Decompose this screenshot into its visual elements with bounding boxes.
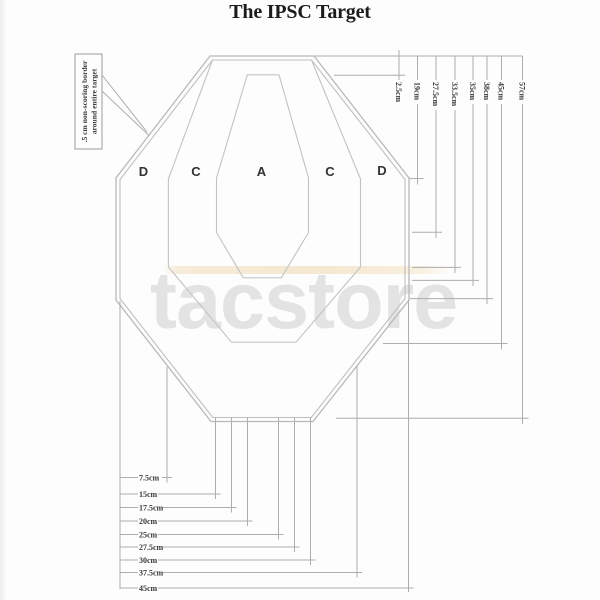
svg-text:25cm: 25cm: [139, 530, 158, 539]
svg-text:D: D: [139, 164, 148, 179]
svg-text:37.5cm: 37.5cm: [139, 568, 164, 577]
svg-text:38cm: 38cm: [482, 82, 491, 101]
svg-text:A: A: [257, 164, 267, 179]
svg-text:57cm: 57cm: [518, 82, 527, 101]
svg-text:20cm: 20cm: [139, 517, 158, 526]
svg-text:C: C: [191, 164, 201, 179]
svg-text:D: D: [377, 163, 386, 178]
svg-text:around entire target: around entire target: [90, 68, 99, 134]
svg-text:19cm: 19cm: [413, 82, 422, 101]
svg-text:27.5cm: 27.5cm: [139, 543, 164, 552]
svg-text:.5 cm non-scoring border: .5 cm non-scoring border: [80, 60, 89, 142]
svg-text:35cm: 35cm: [468, 82, 477, 101]
svg-text:45cm: 45cm: [497, 82, 506, 101]
svg-text:2.5cm: 2.5cm: [394, 82, 403, 103]
svg-text:30cm: 30cm: [139, 556, 158, 565]
svg-text:33.5cm: 33.5cm: [450, 82, 459, 107]
svg-text:7.5cm: 7.5cm: [139, 473, 160, 482]
svg-text:C: C: [325, 164, 335, 179]
svg-text:27.5cm: 27.5cm: [431, 82, 440, 107]
svg-text:45cm: 45cm: [139, 584, 158, 593]
svg-text:15cm: 15cm: [139, 490, 158, 499]
svg-text:17.5cm: 17.5cm: [139, 503, 164, 512]
